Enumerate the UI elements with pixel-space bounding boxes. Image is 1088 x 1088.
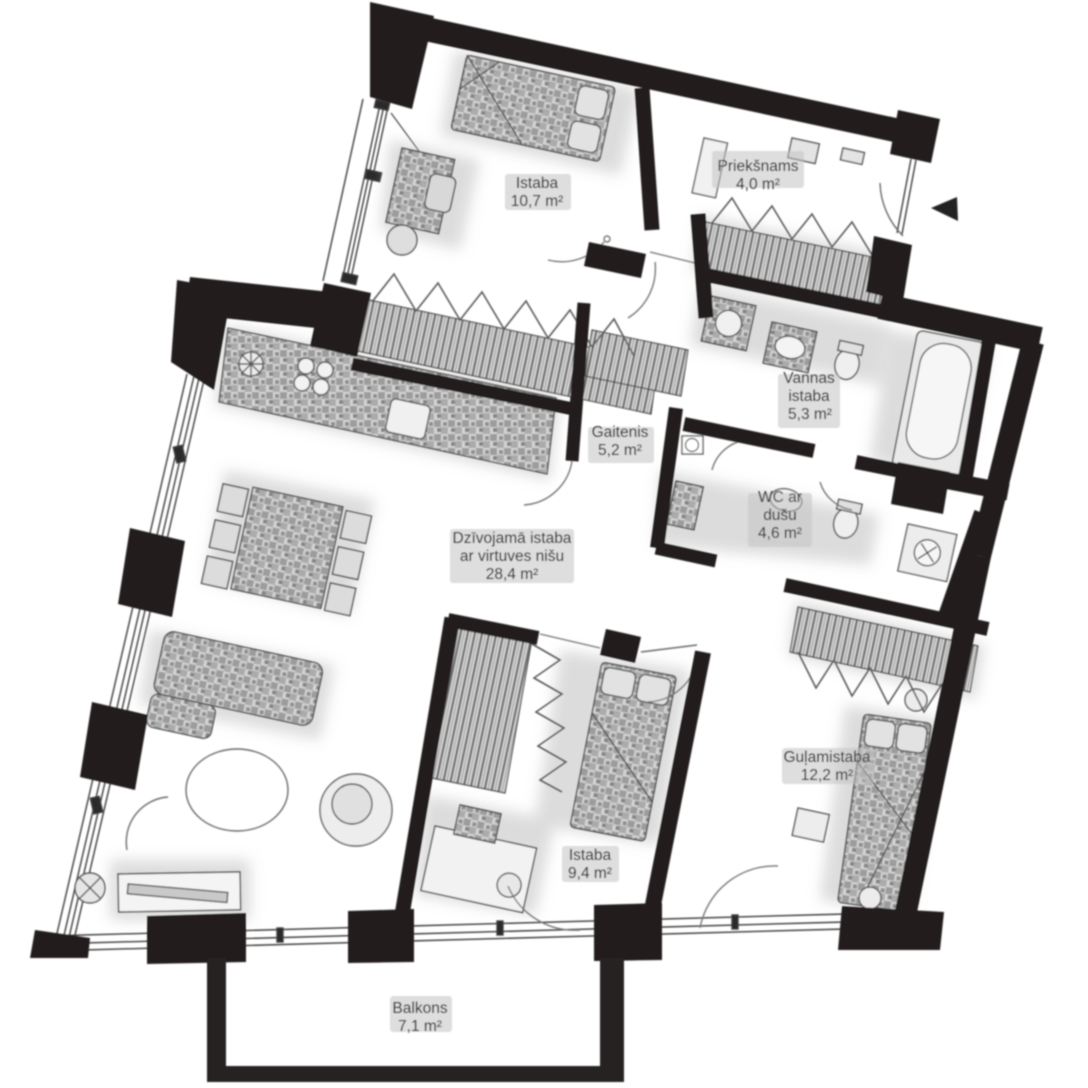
svg-text:Dzīvojamā istaba: Dzīvojamā istaba — [453, 530, 572, 547]
svg-text:7,1 m²: 7,1 m² — [398, 1018, 442, 1035]
svg-text:Balkons: Balkons — [392, 1000, 447, 1017]
svg-text:Guļamistaba: Guļamistaba — [783, 749, 870, 766]
svg-text:dušu: dušu — [763, 507, 797, 524]
svg-text:Vannas: Vannas — [783, 370, 835, 387]
svg-text:istaba: istaba — [788, 388, 830, 405]
svg-text:5,3 m²: 5,3 m² — [788, 406, 832, 423]
svg-text:Gaitenis: Gaitenis — [592, 424, 649, 441]
svg-text:Priekšnams: Priekšnams — [718, 158, 799, 175]
svg-text:9,4 m²: 9,4 m² — [568, 865, 612, 882]
svg-text:4,0 m²: 4,0 m² — [736, 176, 780, 193]
svg-text:28,4 m²: 28,4 m² — [486, 566, 539, 583]
svg-text:4,6 m²: 4,6 m² — [758, 525, 802, 542]
svg-text:12,2 m²: 12,2 m² — [801, 767, 854, 784]
svg-text:10,7 m²: 10,7 m² — [511, 193, 564, 210]
svg-text:Istaba: Istaba — [569, 847, 612, 864]
svg-text:ar virtuves nišu: ar virtuves nišu — [460, 548, 564, 565]
svg-text:Istaba: Istaba — [516, 175, 559, 192]
svg-text:WC ar: WC ar — [758, 489, 802, 506]
svg-text:5,2 m²: 5,2 m² — [598, 442, 642, 459]
